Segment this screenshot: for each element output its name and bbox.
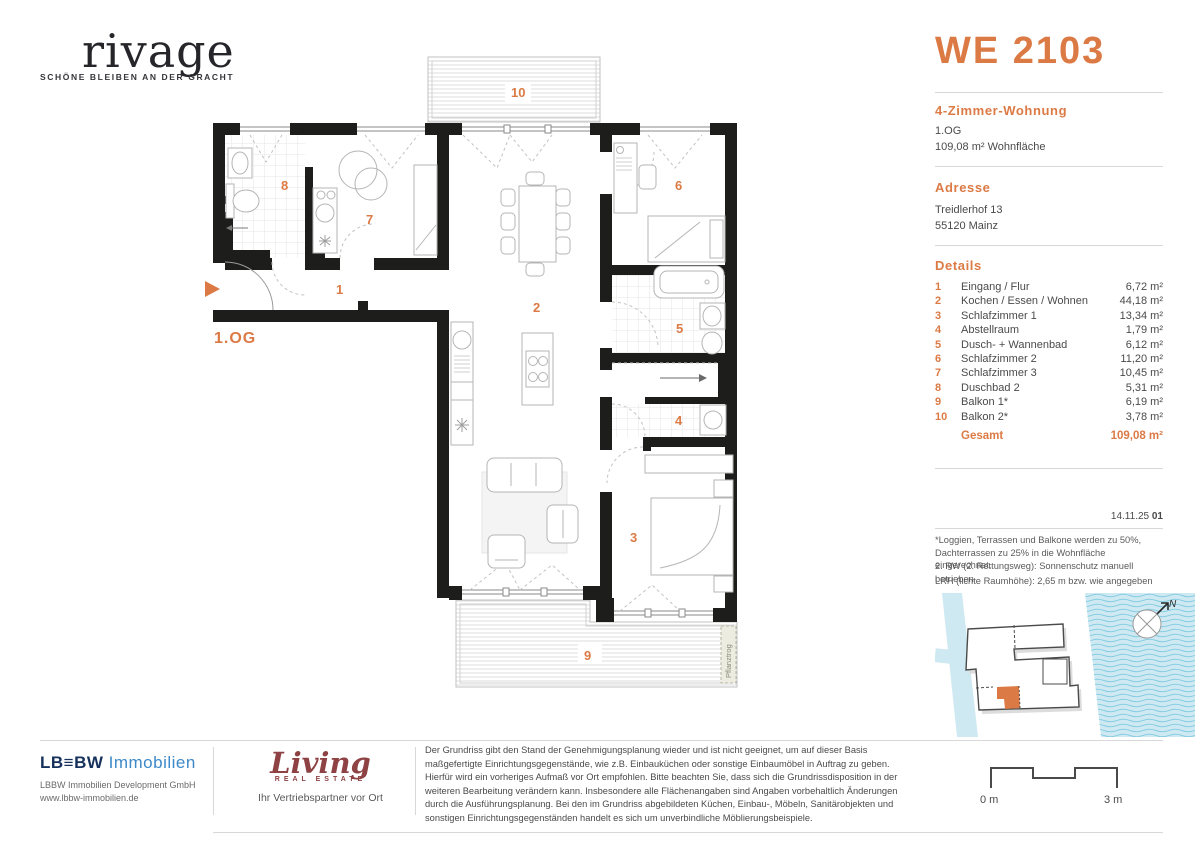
lbbw-logo: LB≡BW Immobilien	[40, 753, 205, 773]
divider	[935, 166, 1163, 167]
summary-area: 109,08 m² Wohnfläche	[935, 139, 1045, 155]
detail-row: 7Schlafzimmer 310,45 m²	[935, 366, 1163, 380]
room-label-1: 1	[336, 282, 343, 297]
living-tagline: Ihr Vertriebspartner vor Ort	[238, 792, 403, 804]
room-label-8: 8	[281, 178, 288, 193]
planter-label: Pflanztrog	[724, 644, 733, 678]
address-line2: 55120 Mainz	[935, 218, 998, 234]
room-label-2: 2	[533, 300, 540, 315]
footer-divider-bottom	[213, 832, 1163, 833]
kitchen-counter	[451, 322, 473, 445]
lobby-area	[612, 363, 718, 382]
room-label-6: 6	[675, 178, 682, 193]
site-map: N	[935, 593, 1195, 737]
washer	[700, 405, 726, 435]
footnote-3: LRH (lichte Raumhöhe): 2,65 m bzw. wie a…	[935, 575, 1163, 588]
planter-box: Pflanztrog	[721, 626, 736, 683]
room-label-4: 4	[675, 413, 683, 428]
floorplan-drawing: 10 9 Pflanztrog	[200, 50, 750, 740]
detail-row: 4Abstellraum1,79 m²	[935, 323, 1163, 337]
apartment-type: 4-Zimmer-Wohnung	[935, 103, 1067, 118]
unit-id: WE 2103	[935, 30, 1105, 73]
living-logo: Living	[238, 748, 403, 778]
footer-divider-v1	[213, 747, 214, 815]
detail-row: 1Eingang / Flur6,72 m²	[935, 280, 1163, 294]
room-label-10: 10	[511, 85, 525, 100]
scale-start-label: 0 m	[980, 794, 998, 806]
scale-bar-drawing	[980, 760, 1130, 790]
divider	[935, 528, 1163, 529]
bedroom2-furniture	[614, 143, 725, 262]
balcony-2: 10	[428, 57, 600, 122]
room-label-9: 9	[584, 648, 591, 663]
scale-end-label: 3 m	[1104, 794, 1122, 806]
summary-floor: 1.OG	[935, 123, 961, 139]
details-list: 1Eingang / Flur6,72 m² 2Kochen / Essen /…	[935, 280, 1163, 424]
room-label-5: 5	[676, 321, 683, 336]
detail-row: 6Schlafzimmer 211,20 m²	[935, 352, 1163, 366]
disclaimer-text: Der Grundriss gibt den Stand der Genehmi…	[425, 744, 917, 826]
detail-row: 3Schlafzimmer 113,34 m²	[935, 309, 1163, 323]
entrance-marker-icon	[205, 281, 220, 297]
building-footprint	[966, 624, 1082, 714]
kitchenette-strip	[313, 188, 337, 253]
address-heading: Adresse	[935, 180, 991, 195]
bedroom3-furniture	[339, 151, 437, 255]
divider	[935, 92, 1163, 93]
sofa-set	[482, 458, 578, 568]
detail-row: 9Balkon 1*6,19 m²	[935, 395, 1163, 409]
divider	[935, 245, 1163, 246]
dining-set	[501, 172, 570, 276]
revision-stamp: 14.11.25 01	[1111, 511, 1163, 522]
kitchen-island	[522, 333, 553, 405]
floorplan-page: rivage SCHÖNE BLEIBEN AN DER GRACHT 10 9	[0, 0, 1200, 848]
living-block: Living REAL ESTATE Ihr Vertriebspartner …	[238, 748, 403, 804]
scale-bar: 0 m 3 m	[980, 760, 1130, 795]
total-row: Gesamt 109,08 m²	[935, 430, 1163, 442]
detail-row: 10Balkon 2*3,78 m²	[935, 410, 1163, 424]
total-label: Gesamt	[961, 430, 1111, 442]
bedroom1-furniture	[645, 455, 733, 592]
total-area: 109,08 m²	[1111, 430, 1163, 442]
north-label: N	[1169, 599, 1177, 610]
lbbw-block: LB≡BW Immobilien LBBW Immobilien Develop…	[40, 753, 205, 805]
footer-divider-top	[40, 740, 1163, 741]
detail-row: 2Kochen / Essen / Wohnen44,18 m²	[935, 294, 1163, 308]
footer-divider-v2	[415, 747, 416, 815]
room-label-3: 3	[630, 530, 637, 545]
living-logo-sub: REAL ESTATE	[238, 776, 403, 783]
divider	[935, 468, 1163, 469]
details-heading: Details	[935, 258, 982, 273]
plan-floor-label: 1.OG	[214, 330, 256, 347]
detail-row: 5Dusch- + Wannenbad6,12 m²	[935, 338, 1163, 352]
room-label-7: 7	[366, 212, 373, 227]
lbbw-subline: LBBW Immobilien Development GmbH www.lbb…	[40, 779, 205, 805]
detail-row: 8Duschbad 25,31 m²	[935, 381, 1163, 395]
address-line1: Treidlerhof 13	[935, 202, 1002, 218]
